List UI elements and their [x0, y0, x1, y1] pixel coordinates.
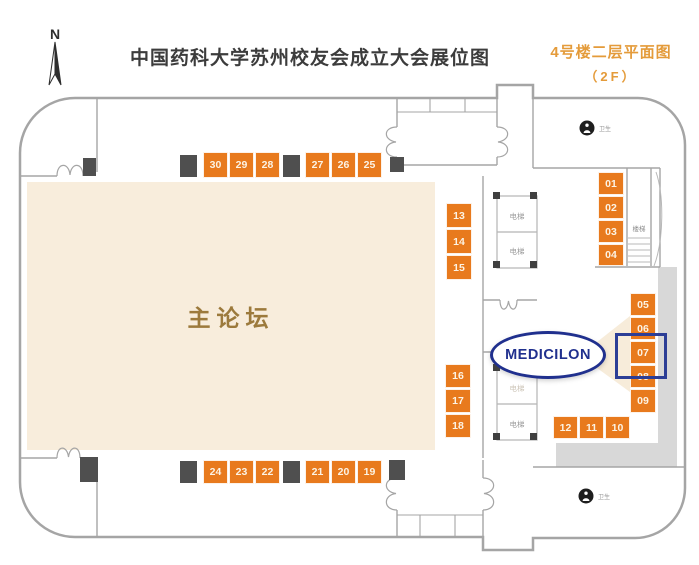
- booth-21: 21: [305, 460, 330, 484]
- floor-plan-page: N 中国药科大学苏州校友会成立大会展位图 4号楼二层平面图 （2F）: [0, 0, 699, 565]
- booth-13: 13: [446, 203, 472, 228]
- booth-25: 25: [357, 152, 382, 178]
- booth-12: 12: [553, 416, 578, 439]
- booth-14: 14: [446, 229, 472, 254]
- booth-11: 11: [579, 416, 604, 439]
- booth-03: 03: [598, 220, 624, 243]
- booth-30: 30: [203, 152, 228, 178]
- booth-23: 23: [229, 460, 254, 484]
- booth-26: 26: [331, 152, 356, 178]
- booth-17: 17: [445, 389, 471, 413]
- booth-20: 20: [331, 460, 356, 484]
- booth-22: 22: [255, 460, 280, 484]
- booth-layer: 0102030405060708091011121314151617181920…: [0, 0, 699, 565]
- booth-16: 16: [445, 364, 471, 388]
- booth-28: 28: [255, 152, 280, 178]
- booth-15: 15: [446, 255, 472, 280]
- booth-24: 24: [203, 460, 228, 484]
- booth-27: 27: [305, 152, 330, 178]
- booth-09: 09: [630, 389, 656, 413]
- medicilon-logo: MEDICILON: [490, 331, 606, 379]
- booth-01: 01: [598, 172, 624, 195]
- booth-10: 10: [605, 416, 630, 439]
- booth-02: 02: [598, 196, 624, 219]
- booth-18: 18: [445, 414, 471, 438]
- booth-19: 19: [357, 460, 382, 484]
- booth-04: 04: [598, 244, 624, 266]
- booth-29: 29: [229, 152, 254, 178]
- booth-07-highlight-box: [615, 333, 667, 379]
- booth-05: 05: [630, 293, 656, 316]
